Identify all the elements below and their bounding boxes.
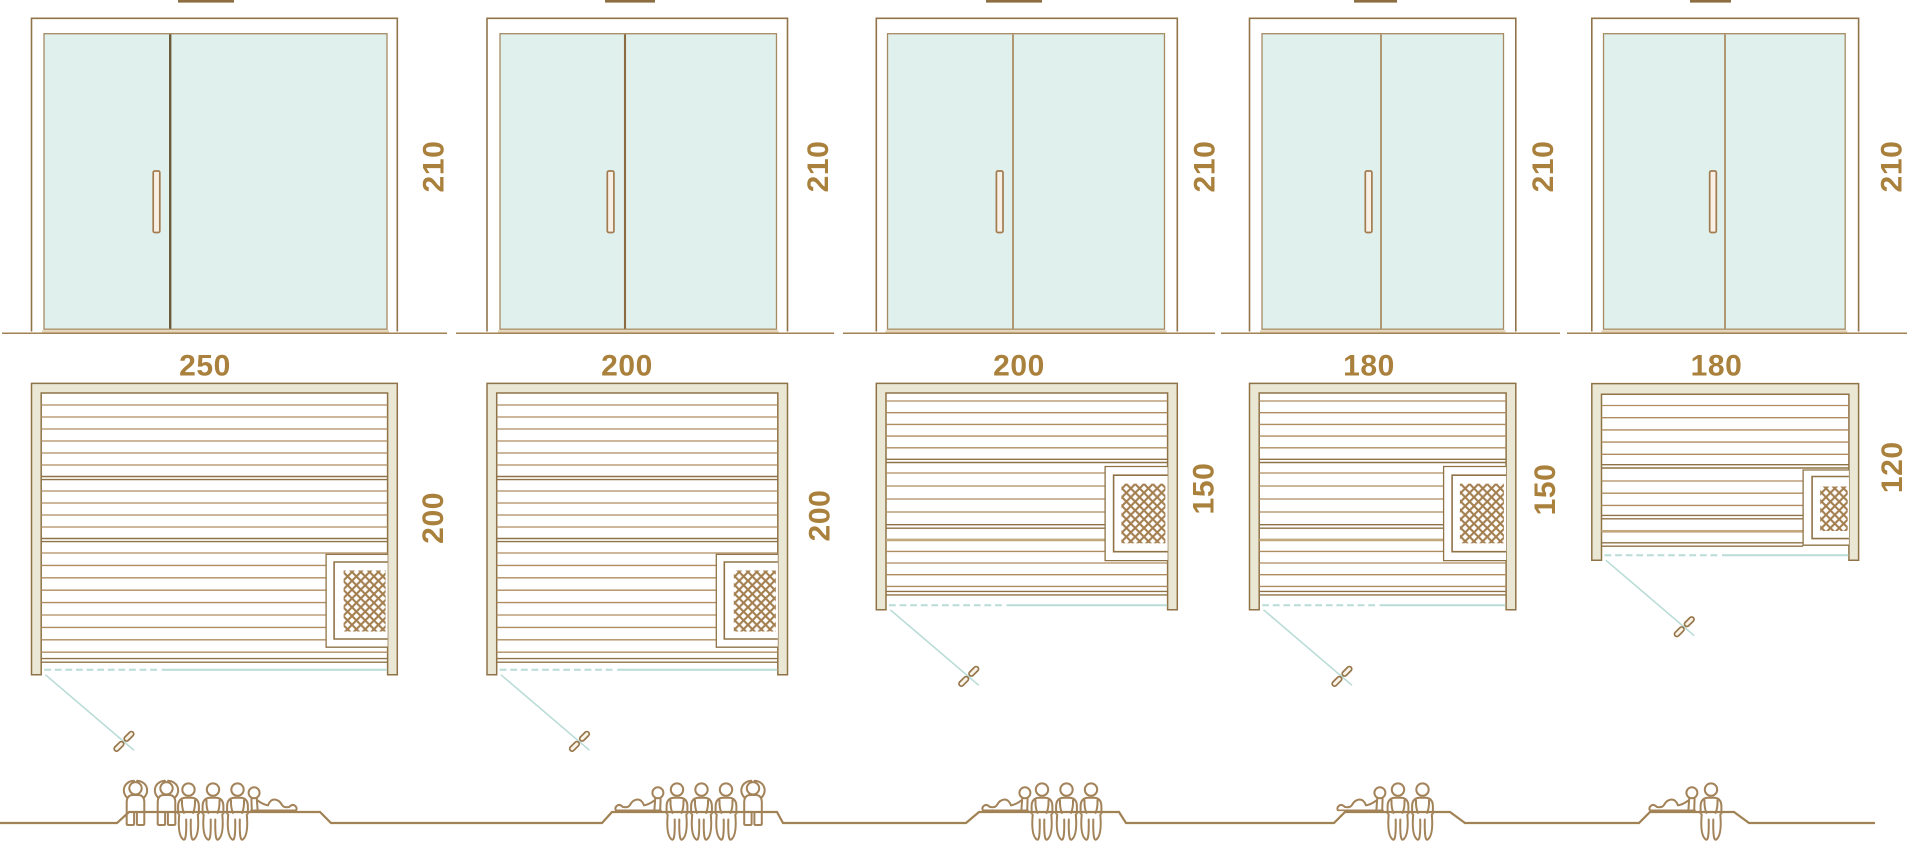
- svg-text:180: 180: [1343, 350, 1395, 383]
- svg-text:150: 150: [1188, 463, 1221, 515]
- svg-text:250: 250: [179, 350, 231, 383]
- svg-text:210: 210: [802, 141, 835, 193]
- svg-text:210: 210: [418, 141, 451, 193]
- svg-text:200: 200: [804, 490, 837, 542]
- svg-text:210: 210: [1189, 141, 1222, 193]
- svg-text:210: 210: [1527, 141, 1560, 193]
- svg-text:200: 200: [417, 492, 450, 544]
- svg-text:200: 200: [601, 350, 653, 383]
- svg-text:210: 210: [1876, 141, 1909, 193]
- svg-text:120: 120: [1876, 441, 1909, 493]
- svg-text:150: 150: [1529, 464, 1562, 516]
- svg-text:200: 200: [993, 350, 1045, 383]
- svg-text:180: 180: [1691, 350, 1743, 383]
